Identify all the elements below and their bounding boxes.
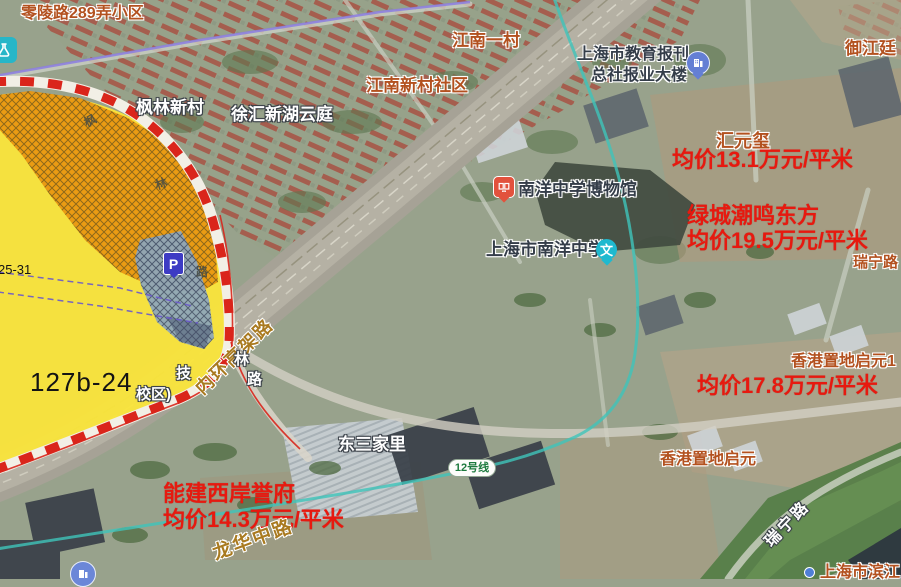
school-poi-icon[interactable]: 文 <box>596 239 617 260</box>
building-poi-icon-bottom[interactable] <box>70 561 96 587</box>
annotation-nengjian-west-bund: 能建西岸誉府 <box>163 482 295 506</box>
flask-icon <box>0 43 11 57</box>
press-building-poi-icon[interactable] <box>686 51 710 75</box>
museum-poi-icon[interactable] <box>493 176 515 198</box>
label-fenglin-road-lower-char1: 林 <box>234 352 249 368</box>
label-fenglin-road-char3: 路 <box>196 263 208 280</box>
label-education-press-line1[interactable]: 上海市教育报刊 <box>577 46 689 63</box>
label-partial-school-line2[interactable]: 校区) <box>136 387 171 403</box>
label-hk-land-qiyuan[interactable]: 香港置地启元 <box>660 451 756 468</box>
label-parcel-25-31: 25-31 <box>0 263 31 277</box>
map-screenshot: { "pois": { "lingling_community": "零陵路28… <box>0 0 901 579</box>
label-dongsanjiali[interactable]: 东三家里 <box>338 436 406 454</box>
metro-line12-badge[interactable]: 12号线 <box>448 459 496 477</box>
label-yujiangting[interactable]: 御江廷 <box>845 40 896 58</box>
building-icon <box>692 57 704 69</box>
laboratory-poi-icon[interactable] <box>0 37 17 63</box>
label-ruining-road-edge: 瑞宁路 <box>853 255 898 271</box>
parking-icon[interactable]: P <box>163 252 184 275</box>
label-nanyang-school[interactable]: 上海市南洋中学 <box>486 241 605 259</box>
annotation-price-lvcheng: 均价19.5万元/平米 <box>687 229 868 253</box>
label-fenglin-estate[interactable]: 枫林新村 <box>136 99 204 117</box>
binjiang-poi-dot-icon[interactable] <box>804 567 815 578</box>
label-jiangnan-first-village[interactable]: 江南一村 <box>452 32 520 50</box>
label-education-press-line2[interactable]: 总社报业大楼 <box>591 67 687 84</box>
satellite-map[interactable]: 零陵路289弄小区 枫林新村 徐汇新湖云庭 江南一村 江南新村社区 上海市教育报… <box>0 0 901 579</box>
label-parcel-127b-24: 127b-24 <box>30 368 132 396</box>
annotation-lvcheng-chaoming: 绿城潮鸣东方 <box>687 204 819 228</box>
label-fenglin-road-lower-char2: 路 <box>247 372 262 388</box>
label-partial-school-line1[interactable]: 技 <box>176 366 191 382</box>
label-jiangnan-community[interactable]: 江南新村社区 <box>366 77 468 95</box>
label-nanyang-museum[interactable]: 南洋中学博物馆 <box>518 181 637 199</box>
annotation-price-hk-land: 均价17.8万元/平米 <box>697 374 878 398</box>
label-hk-land-qiyuan-phase[interactable]: 香港置地启元1 <box>791 353 896 370</box>
annotation-price-huiyuanxi: 均价13.1万元/平米 <box>672 148 853 172</box>
building-icon <box>77 568 89 580</box>
label-lingling-community[interactable]: 零陵路289弄小区 <box>21 5 144 22</box>
label-xuhui-xinhu-yunting[interactable]: 徐汇新湖云庭 <box>231 106 333 124</box>
